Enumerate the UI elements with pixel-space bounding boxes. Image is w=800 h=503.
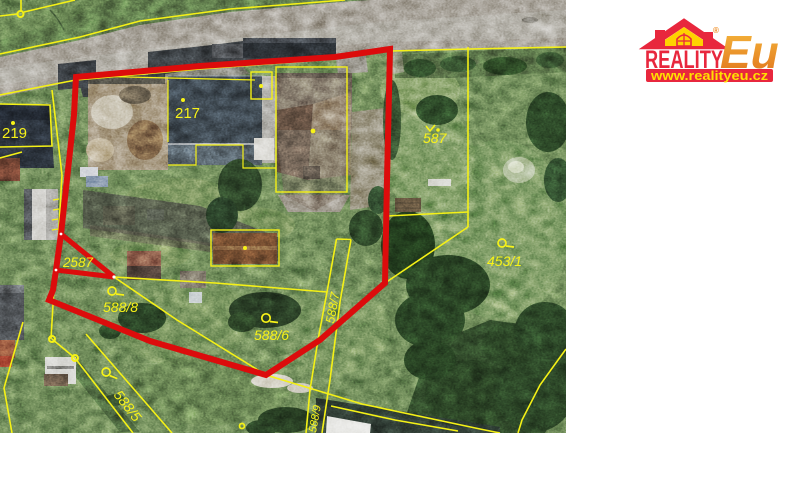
svg-text:www.realityeu.cz: www.realityeu.cz: [650, 69, 768, 83]
svg-text:453/1: 453/1: [487, 253, 522, 269]
svg-text:217: 217: [175, 105, 200, 122]
svg-text:®: ®: [713, 26, 719, 35]
svg-text:587: 587: [423, 130, 448, 146]
svg-text:588/8: 588/8: [103, 299, 138, 315]
svg-text:219: 219: [2, 125, 27, 142]
svg-text:2587: 2587: [62, 255, 94, 270]
svg-text:588/6: 588/6: [254, 327, 289, 343]
